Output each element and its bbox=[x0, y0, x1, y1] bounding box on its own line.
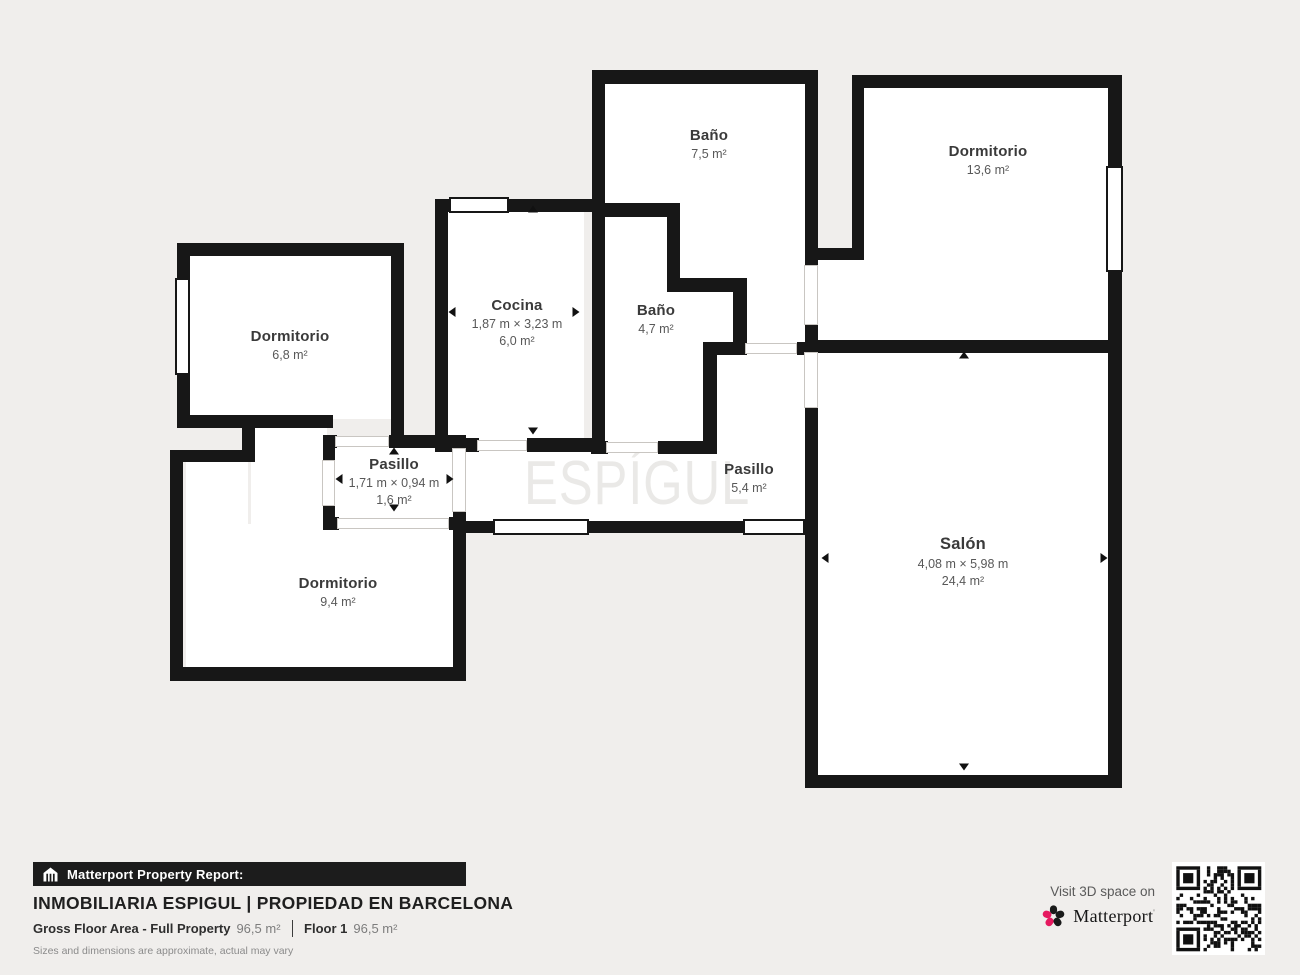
wall-segment bbox=[177, 415, 333, 428]
dimension-arrow-left bbox=[336, 474, 343, 484]
wall-segment bbox=[852, 75, 864, 260]
room-floor bbox=[601, 348, 707, 445]
matterport-wordmark: Matterport' bbox=[1073, 906, 1155, 927]
door-opening bbox=[335, 436, 389, 447]
window bbox=[175, 278, 190, 375]
floor-value: 96,5 m² bbox=[353, 921, 397, 936]
wall-segment bbox=[805, 775, 1122, 788]
door-opening bbox=[606, 442, 658, 453]
room-name: Pasillo bbox=[724, 461, 774, 479]
window bbox=[493, 519, 589, 535]
report-bar-label: Matterport Property Report: bbox=[67, 867, 244, 882]
room-label-pasillo-16: Pasillo1,71 m × 0,94 m1,6 m² bbox=[349, 456, 440, 508]
dimension-arrow-right bbox=[1101, 553, 1108, 563]
page: { "watermark": { "text": "ESPÍGUL" }, "p… bbox=[0, 0, 1300, 975]
room-floor bbox=[713, 350, 809, 450]
room-name: Baño bbox=[637, 302, 675, 320]
wall-segment bbox=[177, 243, 404, 256]
matterport-logo-icon bbox=[1041, 904, 1066, 929]
gfa-label: Gross Floor Area - Full Property bbox=[33, 921, 230, 936]
door-opening bbox=[337, 518, 449, 529]
room-area: 9,4 m² bbox=[299, 595, 378, 610]
wall-segment bbox=[466, 521, 495, 533]
room-label-dormitorio-94: Dormitorio9,4 m² bbox=[299, 575, 378, 610]
room-floor bbox=[860, 84, 1112, 344]
room-label-bano-47: Baño4,7 m² bbox=[637, 302, 675, 337]
room-floor bbox=[816, 256, 896, 344]
wall-segment bbox=[703, 342, 717, 454]
room-area: 5,4 m² bbox=[724, 481, 774, 496]
wall-segment bbox=[453, 512, 466, 672]
wall-segment bbox=[170, 667, 466, 681]
dimension-arrow-right bbox=[447, 474, 454, 484]
dimension-arrow-up bbox=[389, 448, 399, 455]
room-area: 7,5 m² bbox=[690, 147, 728, 162]
room-label-salon: Salón4,08 m × 5,98 m24,4 m² bbox=[918, 535, 1009, 589]
room-label-pasillo-54: Pasillo5,4 m² bbox=[724, 461, 774, 496]
door-opening bbox=[804, 352, 818, 408]
dimension-arrow-left bbox=[822, 553, 829, 563]
dimension-arrow-right bbox=[573, 307, 580, 317]
wall-segment bbox=[323, 435, 335, 462]
wall-segment bbox=[1108, 75, 1122, 166]
wall-segment bbox=[592, 70, 818, 84]
wall-segment bbox=[592, 70, 605, 451]
room-name: Dormitorio bbox=[299, 575, 378, 593]
visit-3d-block: Visit 3D space on Matterport' bbox=[1041, 884, 1155, 929]
wall-segment bbox=[805, 325, 818, 353]
dimension-arrow-up bbox=[528, 206, 538, 213]
floor-label: Floor 1 bbox=[304, 921, 347, 936]
room-dimensions: 4,08 m × 5,98 m bbox=[918, 557, 1009, 572]
room-label-dormitorio-136: Dormitorio13,6 m² bbox=[949, 143, 1028, 178]
dimension-arrow-left bbox=[449, 307, 456, 317]
room-name: Baño bbox=[690, 127, 728, 145]
dimension-arrow-up bbox=[959, 352, 969, 359]
room-dimensions: 1,71 m × 0,94 m bbox=[349, 476, 440, 491]
room-floor bbox=[676, 180, 808, 284]
room-name: Dormitorio bbox=[949, 143, 1028, 161]
room-area: 24,4 m² bbox=[918, 574, 1009, 589]
floor-plan: Baño7,5 m²Dormitorio13,6 m²Dormitorio6,8… bbox=[0, 0, 1300, 830]
door-opening bbox=[322, 460, 335, 506]
wall-segment bbox=[805, 407, 818, 788]
room-area: 13,6 m² bbox=[949, 163, 1028, 178]
wall-segment bbox=[391, 243, 404, 435]
visit-3d-text: Visit 3D space on bbox=[1041, 884, 1155, 899]
wall-segment bbox=[449, 517, 466, 530]
house-icon bbox=[42, 866, 59, 883]
property-title: INMOBILIARIA ESPIGUL | PROPIEDAD EN BARC… bbox=[33, 893, 513, 914]
room-name: Salón bbox=[918, 535, 1009, 555]
room-floor bbox=[743, 270, 808, 348]
wall-segment bbox=[177, 243, 190, 278]
wall-segment bbox=[589, 521, 745, 533]
room-area: 1,6 m² bbox=[349, 493, 440, 508]
report-header-bar: Matterport Property Report: bbox=[33, 862, 466, 886]
room-label-bano-75: Baño7,5 m² bbox=[690, 127, 728, 162]
door-opening bbox=[452, 448, 466, 512]
door-opening bbox=[477, 440, 527, 451]
room-label-cocina: Cocina1,87 m × 3,23 m6,0 m² bbox=[472, 297, 563, 349]
door-opening bbox=[745, 343, 797, 354]
disclaimer-text: Sizes and dimensions are approximate, ac… bbox=[33, 945, 293, 957]
wall-segment bbox=[509, 199, 605, 212]
room-name: Dormitorio bbox=[251, 328, 330, 346]
window bbox=[449, 197, 509, 213]
window bbox=[743, 519, 805, 535]
floor-area-line: Gross Floor Area - Full Property 96,5 m²… bbox=[33, 920, 397, 937]
wall-segment bbox=[805, 70, 818, 267]
qr-code bbox=[1172, 862, 1265, 955]
dimension-arrow-down bbox=[959, 764, 969, 771]
wall-segment bbox=[170, 450, 183, 681]
room-area: 6,0 m² bbox=[472, 334, 563, 349]
wall-segment bbox=[1108, 353, 1122, 788]
wall-segment bbox=[389, 435, 466, 448]
room-area: 6,8 m² bbox=[251, 348, 330, 363]
wall-segment bbox=[667, 278, 743, 292]
wall-segment bbox=[818, 340, 1122, 353]
room-name: Pasillo bbox=[349, 456, 440, 474]
window bbox=[1106, 166, 1123, 272]
door-opening bbox=[804, 265, 818, 325]
room-label-dormitorio-68: Dormitorio6,8 m² bbox=[251, 328, 330, 363]
wall-segment bbox=[852, 75, 1122, 88]
room-name: Cocina bbox=[472, 297, 563, 315]
divider bbox=[292, 920, 294, 937]
wall-segment bbox=[435, 199, 448, 452]
dimension-arrow-down bbox=[528, 428, 538, 435]
wall-segment bbox=[818, 248, 864, 260]
gfa-value: 96,5 m² bbox=[236, 921, 280, 936]
room-area: 4,7 m² bbox=[637, 322, 675, 337]
room-dimensions: 1,87 m × 3,23 m bbox=[472, 317, 563, 332]
matterport-brand-row: Matterport' bbox=[1041, 904, 1155, 929]
espigul-watermark: ESPÍGUL bbox=[524, 448, 750, 519]
